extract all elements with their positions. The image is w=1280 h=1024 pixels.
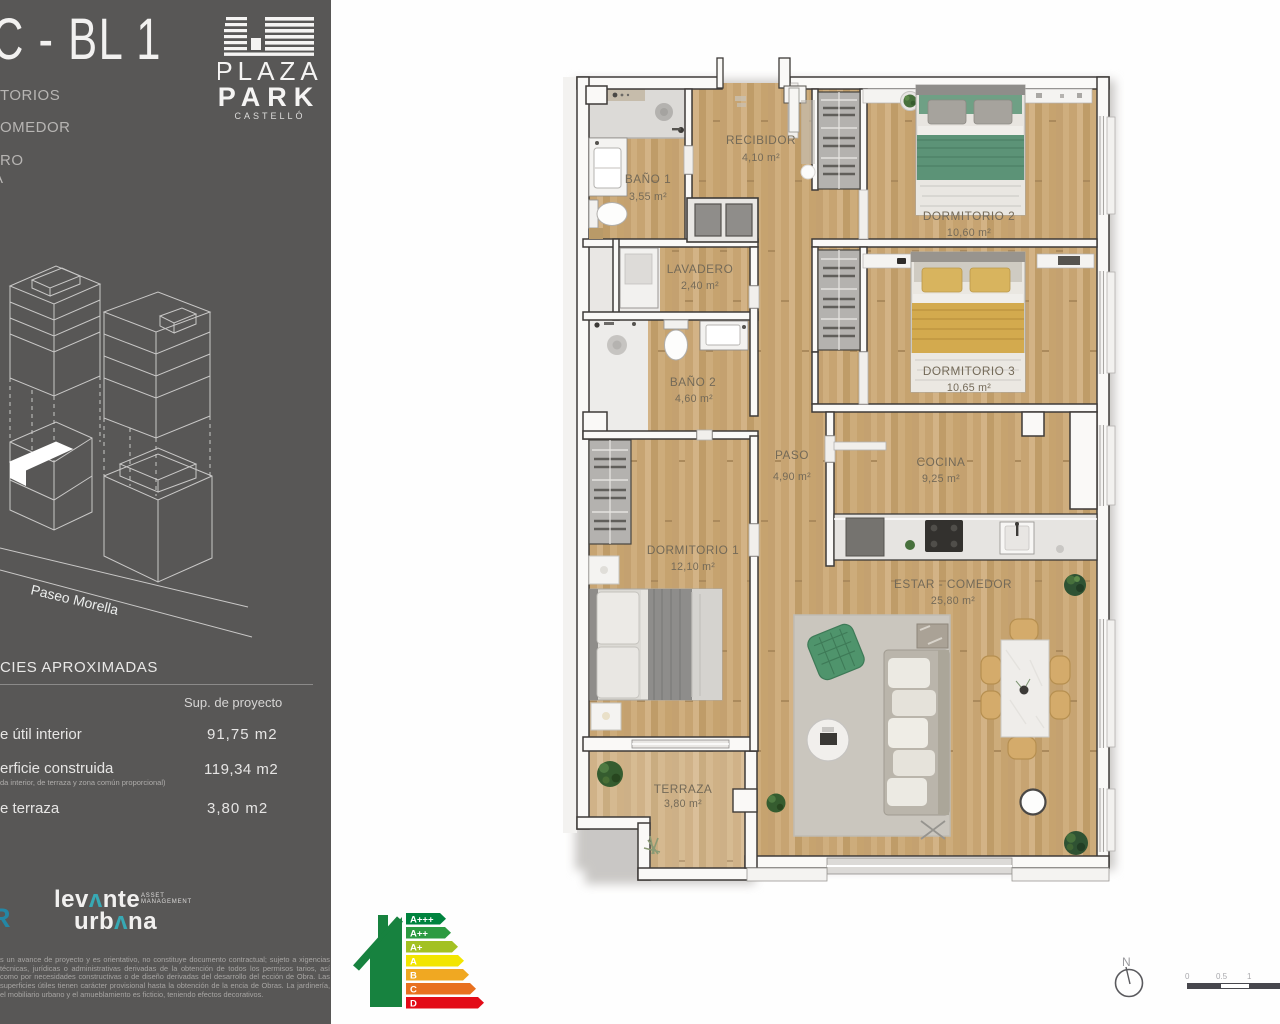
svg-text:4,60 m²: 4,60 m² <box>675 393 713 405</box>
svg-text:BAÑO 1: BAÑO 1 <box>625 172 671 186</box>
svg-text:A+: A+ <box>410 943 423 954</box>
svg-text:TERRAZA: TERRAZA <box>654 782 713 796</box>
svg-text:RECIBIDOR: RECIBIDOR <box>726 133 796 147</box>
svg-text:COCINA: COCINA <box>917 455 966 469</box>
svg-text:C: C <box>410 985 417 996</box>
svg-text:PASO: PASO <box>775 448 809 462</box>
svg-text:0: 0 <box>1185 972 1190 981</box>
svg-text:BAÑO 2: BAÑO 2 <box>670 375 716 389</box>
svg-text:A: A <box>410 957 417 968</box>
svg-text:25,80 m²: 25,80 m² <box>931 595 975 607</box>
svg-text:10,60 m²: 10,60 m² <box>947 227 991 239</box>
svg-text:DORMITORIO 1: DORMITORIO 1 <box>647 543 739 557</box>
svg-text:D: D <box>410 999 417 1010</box>
svg-text:A+++: A+++ <box>410 915 434 926</box>
svg-text:3,80 m²: 3,80 m² <box>664 798 702 810</box>
svg-text:A++: A++ <box>410 929 428 940</box>
svg-text:9,25 m²: 9,25 m² <box>922 473 960 485</box>
svg-text:N: N <box>1122 955 1131 969</box>
svg-text:DORMITORIO 3: DORMITORIO 3 <box>923 364 1015 378</box>
svg-text:4,90 m²: 4,90 m² <box>773 471 811 483</box>
svg-text:B: B <box>410 971 417 982</box>
svg-text:3,55 m²: 3,55 m² <box>629 191 667 203</box>
svg-text:12,10 m²: 12,10 m² <box>671 561 715 573</box>
svg-text:0.5: 0.5 <box>1216 972 1228 981</box>
svg-text:ESTAR - COMEDOR: ESTAR - COMEDOR <box>894 577 1012 591</box>
svg-text:LAVADERO: LAVADERO <box>667 262 734 276</box>
svg-text:2,40 m²: 2,40 m² <box>681 280 719 292</box>
svg-text:10,65 m²: 10,65 m² <box>947 382 991 394</box>
svg-text:4,10 m²: 4,10 m² <box>742 152 780 164</box>
svg-text:DORMITORIO 2: DORMITORIO 2 <box>923 209 1015 223</box>
svg-text:1: 1 <box>1247 972 1252 981</box>
